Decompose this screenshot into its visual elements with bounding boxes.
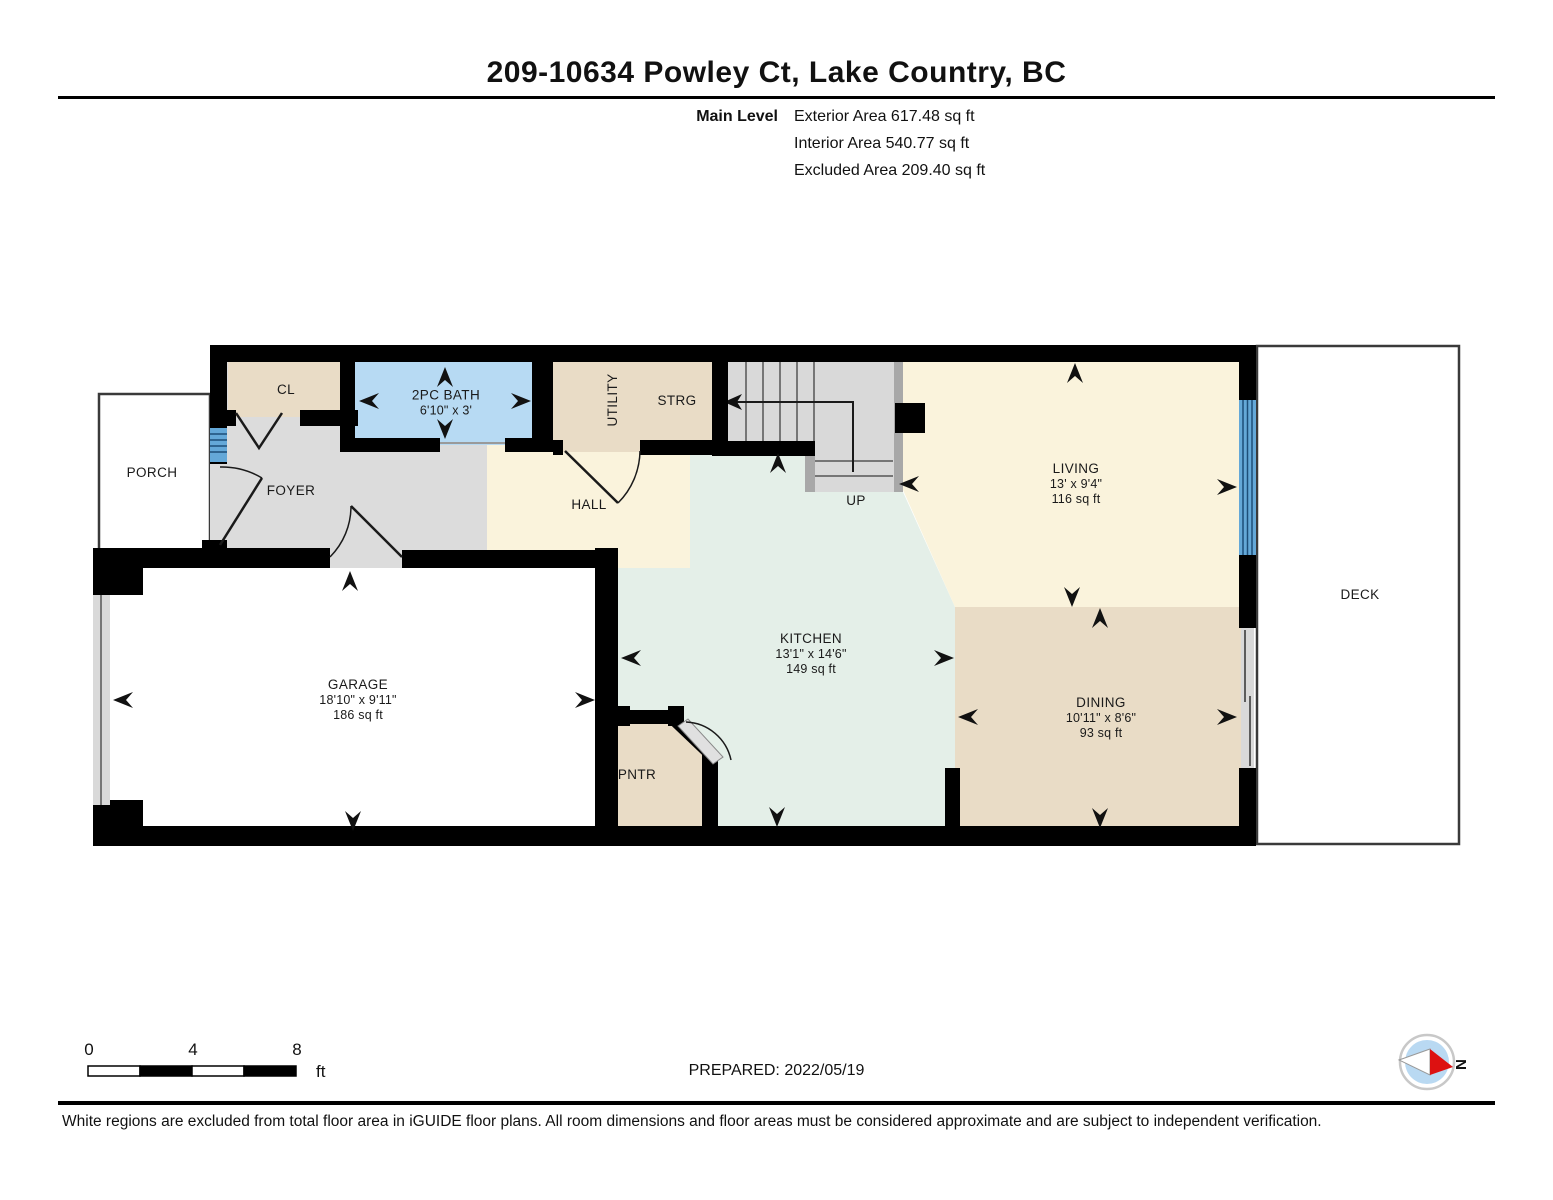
label-hall: HALL <box>571 497 606 513</box>
footer-divider <box>58 1101 1495 1105</box>
label-dining: DINING10'11" x 8'6"93 sq ft <box>1066 695 1136 741</box>
label-bath: 2PC BATH6'10" x 3' <box>412 387 480 418</box>
living-window <box>1239 400 1256 555</box>
label-utility: UTILITY <box>605 373 621 426</box>
scale-tick-0: 0 <box>84 1040 93 1060</box>
compass-north-label: N <box>1452 1059 1469 1070</box>
scale-tick-4: 4 <box>188 1040 197 1060</box>
dining-sliding-door <box>1241 628 1254 768</box>
label-deck: DECK <box>1340 587 1379 603</box>
label-up: UP <box>846 493 866 509</box>
foyer-window <box>210 428 227 462</box>
scale-tick-8: 8 <box>292 1040 301 1060</box>
prepared-date: PREPARED: 2022/05/19 <box>0 1062 1553 1080</box>
label-pantry: PNTR <box>618 767 656 783</box>
label-strg: STRG <box>657 393 696 409</box>
disclaimer-text: White regions are excluded from total fl… <box>62 1113 1522 1131</box>
garage-door <box>93 595 110 805</box>
label-foyer: FOYER <box>267 483 316 499</box>
label-living: LIVING13' x 9'4"116 sq ft <box>1050 461 1102 507</box>
label-cl: CL <box>277 382 295 398</box>
label-kitchen: KITCHEN13'1" x 14'6"149 sq ft <box>775 631 846 677</box>
label-garage: GARAGE18'10" x 9'11"186 sq ft <box>319 677 396 723</box>
label-porch: PORCH <box>127 465 178 481</box>
floor-plan <box>0 0 1553 1200</box>
